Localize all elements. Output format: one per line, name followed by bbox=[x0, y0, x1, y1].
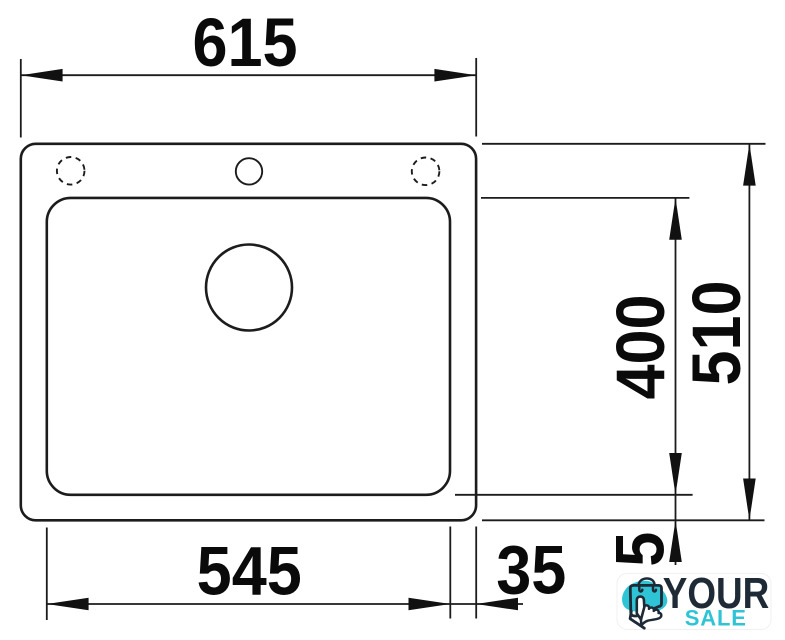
svg-text:5: 5 bbox=[601, 532, 678, 567]
svg-text:510: 510 bbox=[677, 280, 754, 385]
svg-text:SALE: SALE bbox=[685, 606, 747, 631]
svg-text:545: 545 bbox=[197, 532, 302, 609]
svg-text:35: 35 bbox=[496, 531, 566, 608]
svg-text:615: 615 bbox=[192, 3, 297, 80]
svg-text:400: 400 bbox=[601, 294, 678, 399]
